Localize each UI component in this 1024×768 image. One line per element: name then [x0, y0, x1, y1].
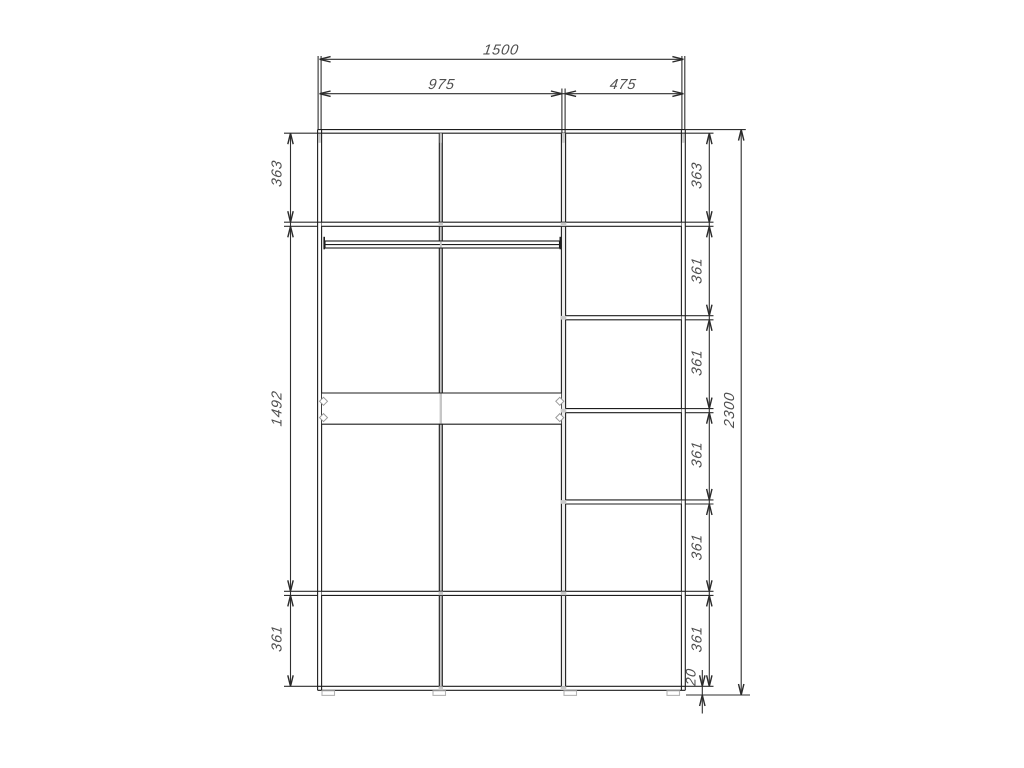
svg-text:361: 361 — [690, 348, 706, 377]
svg-text:475: 475 — [609, 77, 638, 93]
svg-text:2300: 2300 — [722, 391, 738, 430]
svg-text:975: 975 — [427, 77, 456, 93]
svg-text:361: 361 — [690, 625, 706, 654]
svg-text:361: 361 — [270, 624, 286, 653]
svg-text:363: 363 — [690, 161, 706, 190]
svg-text:1492: 1492 — [270, 390, 286, 428]
svg-text:363: 363 — [270, 159, 286, 188]
svg-text:361: 361 — [690, 533, 706, 562]
svg-text:361: 361 — [690, 440, 706, 469]
svg-text:361: 361 — [690, 256, 706, 285]
svg-text:1500: 1500 — [482, 43, 520, 59]
